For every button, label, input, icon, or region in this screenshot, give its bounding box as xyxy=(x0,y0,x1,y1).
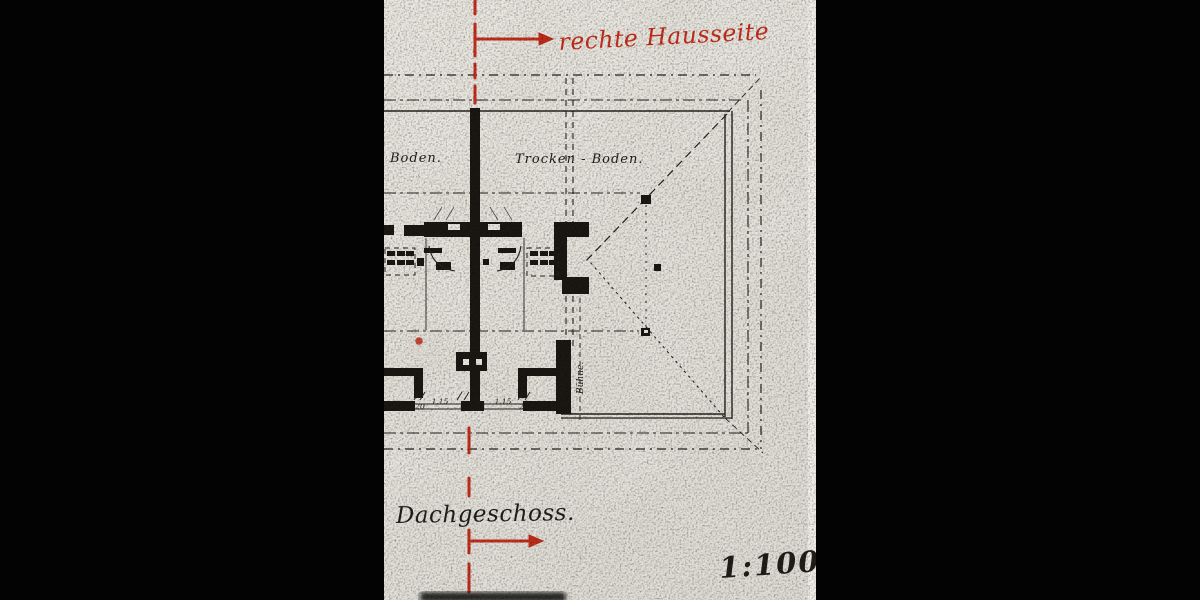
letterbox-left xyxy=(0,0,384,600)
cross-wall-stub-left2 xyxy=(404,225,424,236)
cross-wall-stub-left xyxy=(384,225,394,235)
facade-wall-b xyxy=(461,401,484,411)
door-lintel-left xyxy=(424,248,442,253)
dim-label-20-right: 20 xyxy=(518,402,529,411)
roof-post-square-1 xyxy=(641,195,651,204)
red-ink-dot xyxy=(416,338,422,344)
east-wall-step xyxy=(562,277,589,294)
dim-label-20-left: 20 xyxy=(414,402,425,411)
letterbox-right xyxy=(816,0,1200,600)
scan-edge-smudge xyxy=(420,592,566,600)
page-edge-highlight xyxy=(808,0,816,600)
door-lintel-right xyxy=(498,248,516,253)
dim-label-115-right: 1,15 xyxy=(495,397,512,406)
cross-wall-niche-left xyxy=(448,224,460,230)
wall-nib-left xyxy=(417,258,424,266)
scanned-plan-paper: Boden. Trocken - Boden. Bühne. 20 1,15 1… xyxy=(384,0,816,600)
loft-vertical-label: Bühne. xyxy=(576,362,586,395)
floor-plan-drawing: Boden. Trocken - Boden. Bühne. 20 1,15 1… xyxy=(384,0,816,600)
roof-post-square-3-hole xyxy=(644,330,648,333)
room-label-boden: Boden. xyxy=(389,151,442,166)
cross-wall xyxy=(424,222,522,237)
wall-nib-center xyxy=(483,259,489,265)
room-label-trocken-boden: Trocken - Boden. xyxy=(515,152,644,167)
cross-wall-niche-right xyxy=(488,224,500,230)
scale-label: 1:100 xyxy=(718,544,816,585)
chimney-pier-center xyxy=(456,352,487,371)
facade-wall-a xyxy=(384,401,415,411)
scanned-blueprint-screenshot: Boden. Trocken - Boden. Bühne. 20 1,15 1… xyxy=(0,0,1200,600)
east-wall-upper xyxy=(554,237,567,280)
chimney-flue-hole-a xyxy=(463,359,469,365)
roof-post-square-2 xyxy=(654,264,661,271)
dim-label-115-left: 1,15 xyxy=(432,397,449,406)
east-wall-head xyxy=(554,222,589,237)
chimney-flue-hole-b xyxy=(476,359,482,365)
floor-title: Dachgeschoss. xyxy=(395,500,575,529)
